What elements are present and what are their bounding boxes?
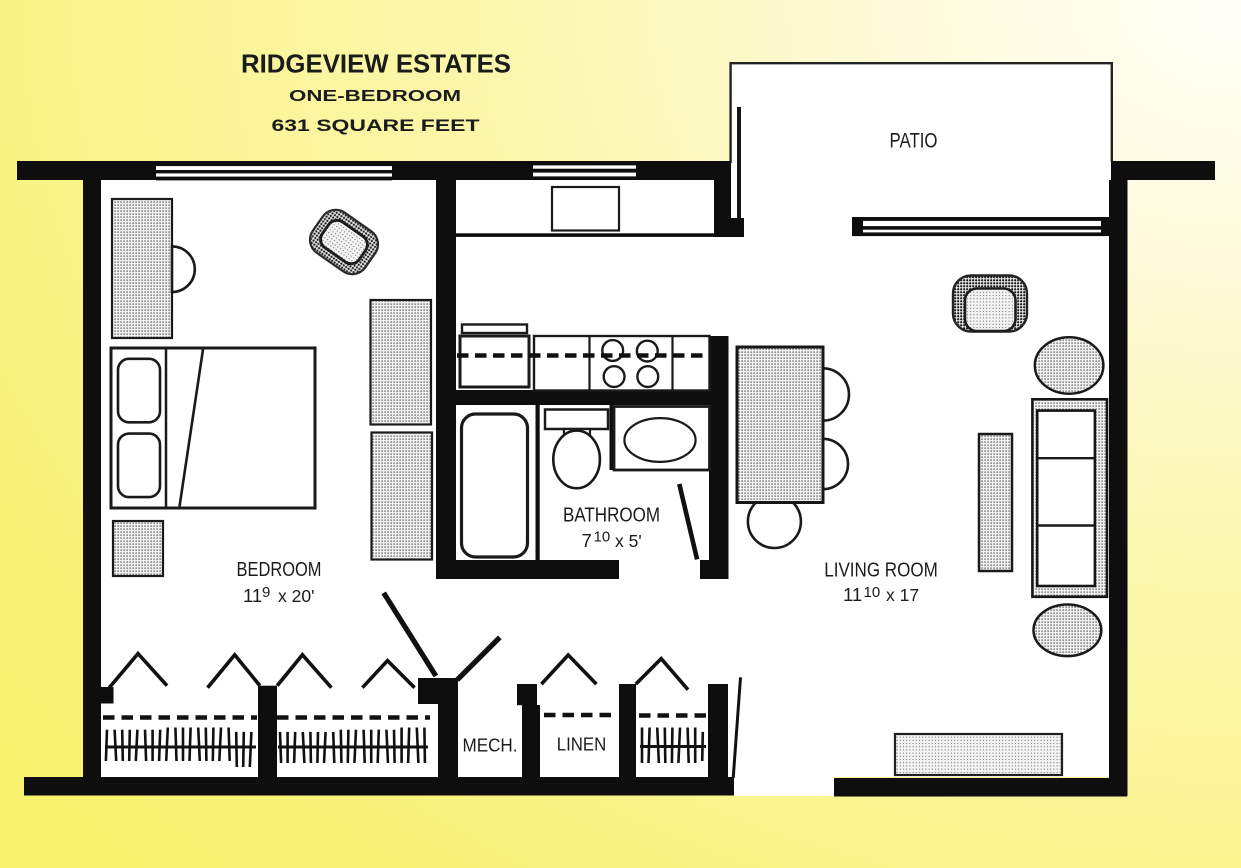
svg-text:x 5': x 5' xyxy=(615,531,642,551)
svg-text:LINEN: LINEN xyxy=(557,735,607,755)
svg-text:9: 9 xyxy=(262,584,270,601)
svg-text:10: 10 xyxy=(594,529,611,546)
svg-text:10: 10 xyxy=(864,584,881,601)
svg-text:x 17: x 17 xyxy=(886,585,919,605)
svg-text:x 20': x 20' xyxy=(278,586,314,606)
svg-text:BEDROOM: BEDROOM xyxy=(237,558,322,581)
svg-text:MECH.: MECH. xyxy=(463,736,518,756)
svg-text:BATHROOM: BATHROOM xyxy=(563,505,660,527)
svg-text:PATIO: PATIO xyxy=(890,129,938,153)
svg-text:RIDGEVIEW ESTATES: RIDGEVIEW ESTATES xyxy=(241,49,511,79)
svg-text:ONE-BEDROOM: ONE-BEDROOM xyxy=(289,88,461,105)
svg-text:11: 11 xyxy=(843,584,862,605)
svg-text:7: 7 xyxy=(582,530,592,551)
svg-text:631 SQUARE FEET: 631 SQUARE FEET xyxy=(272,117,480,135)
svg-text:LIVING ROOM: LIVING ROOM xyxy=(824,560,938,582)
svg-text:11: 11 xyxy=(243,585,262,606)
